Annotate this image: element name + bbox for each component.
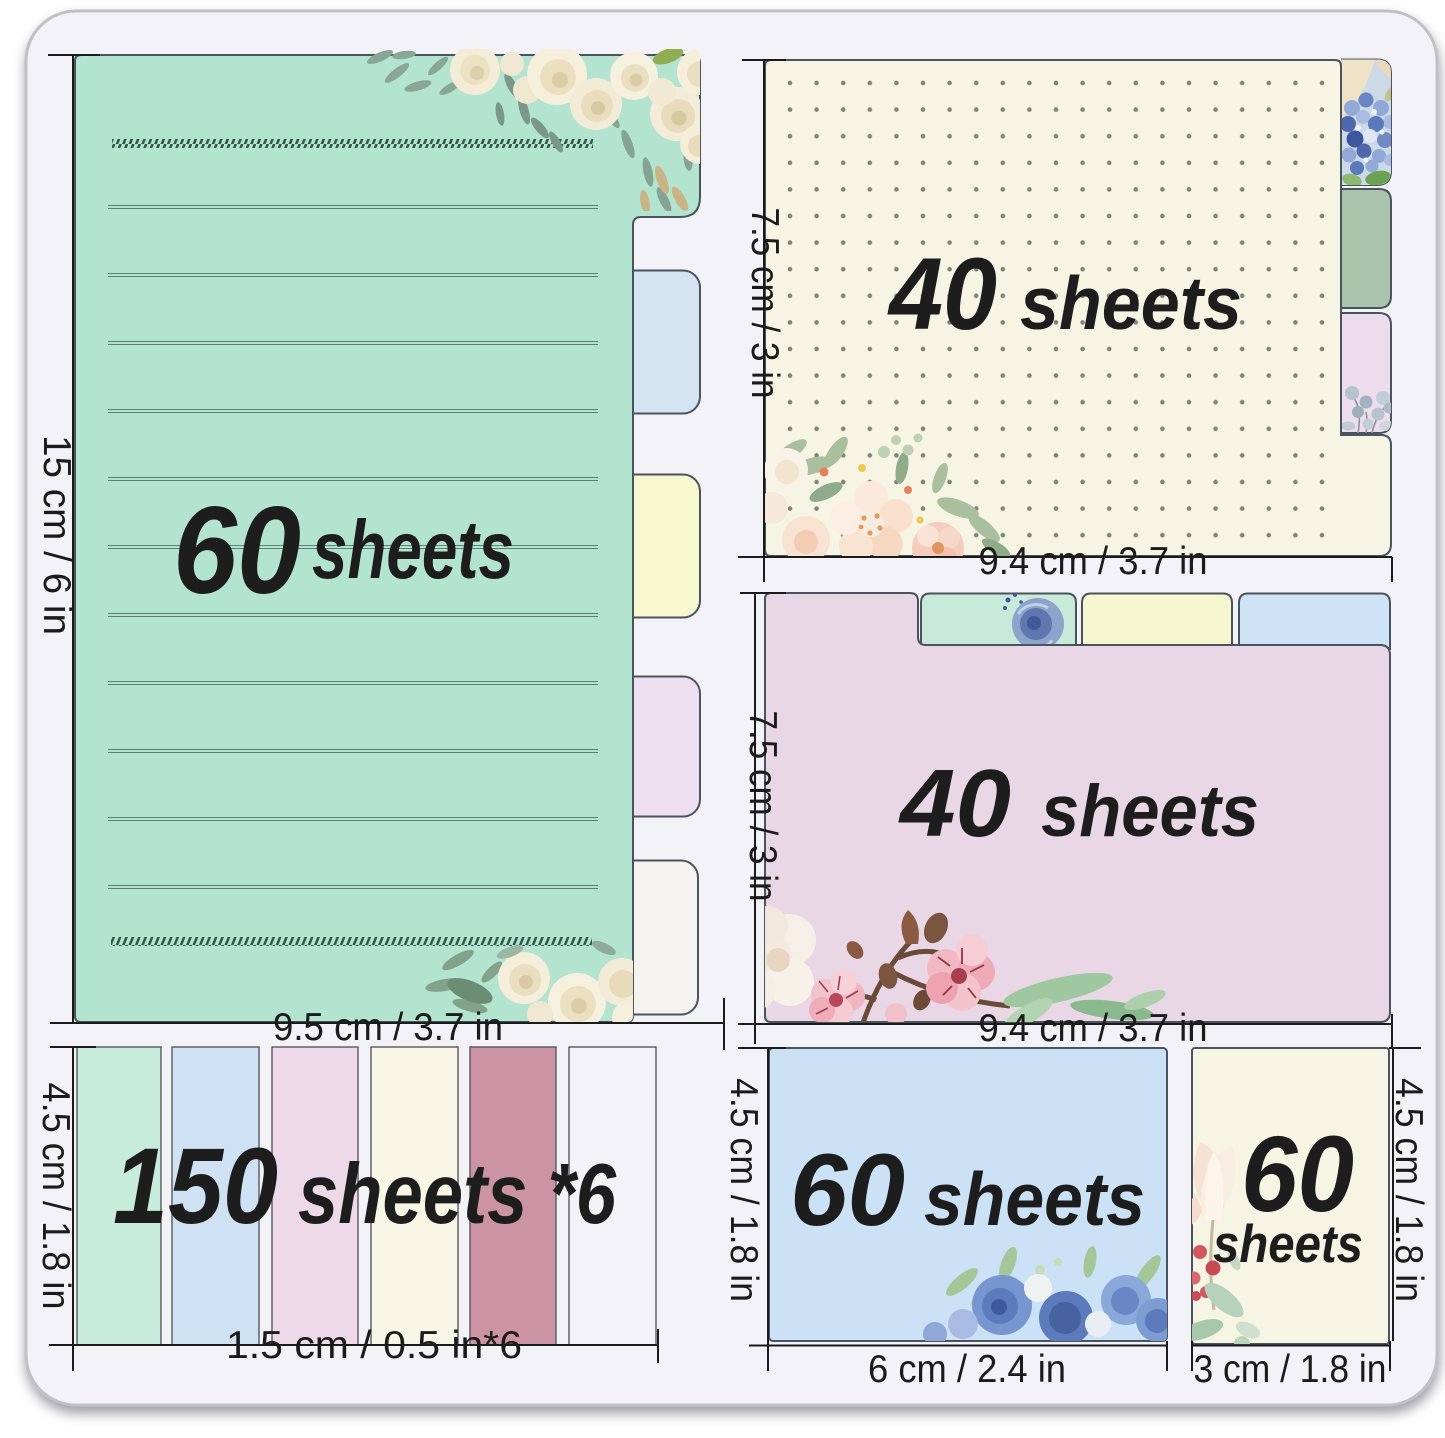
svg-text:4.5 cm / 1.8 in: 4.5 cm / 1.8 in [34, 1083, 77, 1310]
svg-text:60: 60 [790, 1133, 905, 1247]
svg-text:40: 40 [898, 750, 1011, 857]
svg-text:sheets: sheets [1020, 261, 1242, 345]
svg-text:sheets: sheets [1041, 771, 1259, 852]
svg-text:9.4 cm / 3.7 in: 9.4 cm / 3.7 in [979, 1007, 1208, 1050]
svg-text:sheets *6: sheets *6 [298, 1147, 617, 1242]
svg-text:1.5 cm / 0.5 in*6: 1.5 cm / 0.5 in*6 [226, 1324, 522, 1367]
svg-text:7.5 cm / 3 in: 7.5 cm / 3 in [741, 711, 784, 902]
svg-text:sheets: sheets [924, 1157, 1145, 1241]
svg-text:7.5 cm / 3 in: 7.5 cm / 3 in [743, 208, 786, 399]
svg-text:3 cm / 1.8 in: 3 cm / 1.8 in [1194, 1348, 1387, 1391]
svg-text:9.5 cm / 3.7 in: 9.5 cm / 3.7 in [273, 1006, 503, 1049]
svg-text:150: 150 [113, 1125, 278, 1246]
svg-text:9.4 cm / 3.7 in: 9.4 cm / 3.7 in [979, 540, 1208, 583]
svg-text:15 cm / 6 in: 15 cm / 6 in [35, 435, 78, 635]
svg-text:4.5 cm / 1.8 in: 4.5 cm / 1.8 in [1387, 1078, 1430, 1302]
svg-text:40: 40 [887, 237, 997, 351]
svg-text:60: 60 [173, 482, 301, 620]
svg-text:sheets: sheets [312, 503, 514, 596]
svg-text:4.5 cm / 1.8 in: 4.5 cm / 1.8 in [722, 1078, 765, 1302]
svg-text:sheets: sheets [1213, 1215, 1363, 1274]
svg-text:6 cm / 2.4 in: 6 cm / 2.4 in [868, 1348, 1066, 1391]
